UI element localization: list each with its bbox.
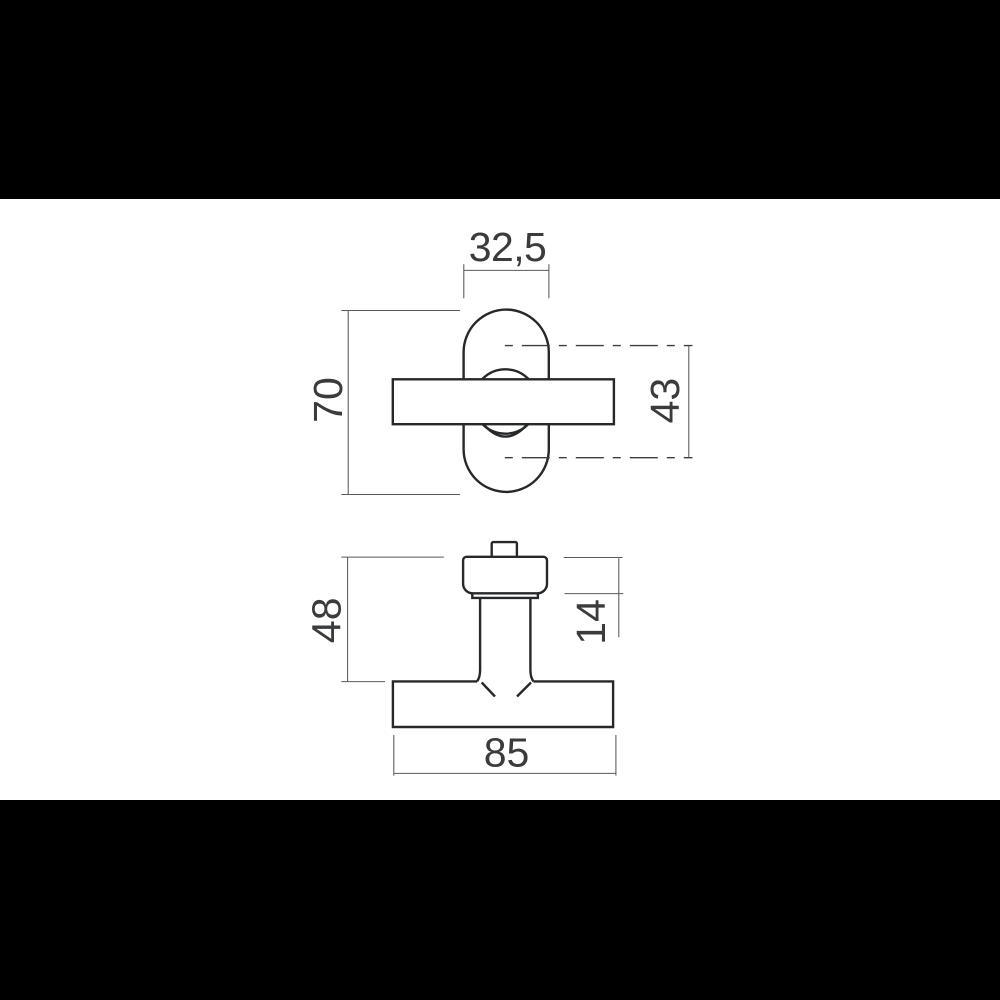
svg-text:70: 70 [305,377,351,423]
svg-text:48: 48 [303,597,349,643]
svg-text:14: 14 [568,599,614,645]
svg-text:85: 85 [484,730,530,776]
svg-text:32,5: 32,5 [469,224,546,270]
svg-text:43: 43 [642,378,688,424]
